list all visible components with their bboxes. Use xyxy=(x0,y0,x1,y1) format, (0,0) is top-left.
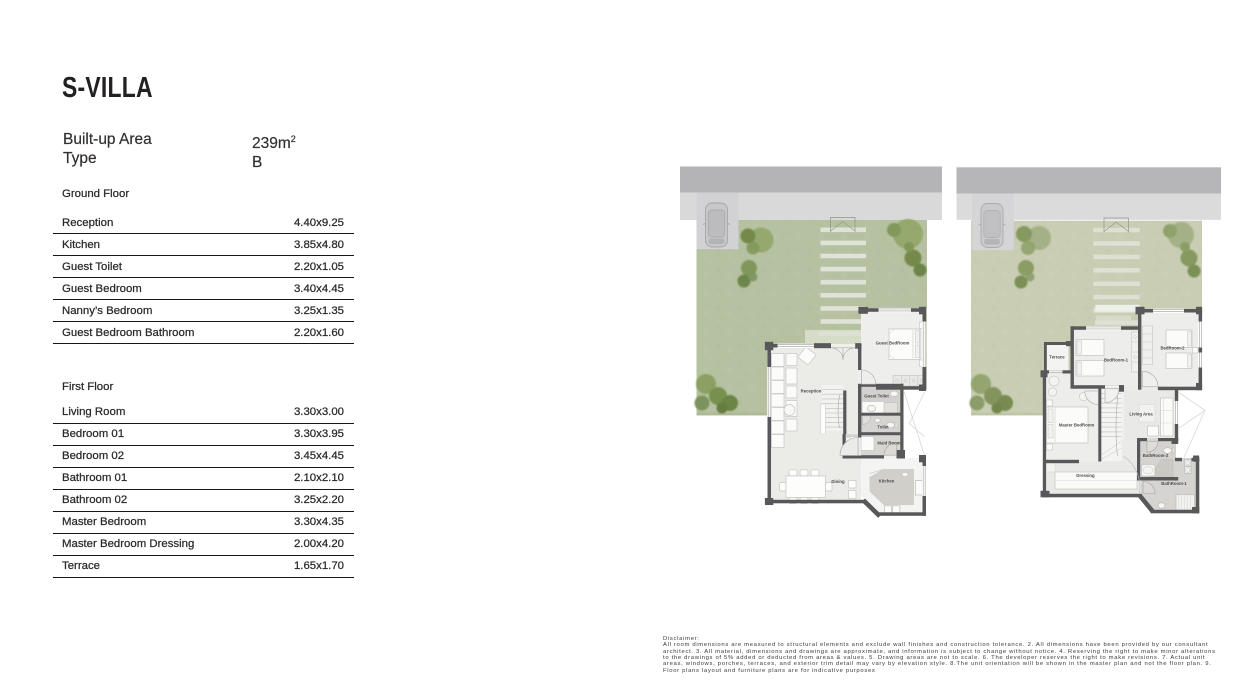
svg-text:BedRoom-1: BedRoom-1 xyxy=(1104,358,1129,363)
svg-text:BedRoom-2: BedRoom-2 xyxy=(1160,346,1185,351)
svg-text:Maid Room: Maid Room xyxy=(877,441,900,446)
svg-text:Guest BedRoom: Guest BedRoom xyxy=(876,341,910,346)
svg-text:Guest Toilet: Guest Toilet xyxy=(864,394,889,399)
svg-text:Dining: Dining xyxy=(831,479,845,484)
svg-text:Toilet: Toilet xyxy=(877,425,889,430)
svg-text:BathRoom-2: BathRoom-2 xyxy=(1143,453,1169,458)
svg-text:Terrace: Terrace xyxy=(1049,355,1065,360)
svg-text:Kitchen: Kitchen xyxy=(879,479,895,484)
svg-text:Reception: Reception xyxy=(801,389,822,394)
svg-text:Master BedRoom: Master BedRoom xyxy=(1059,423,1095,428)
svg-text:Living Area: Living Area xyxy=(1129,412,1153,417)
svg-text:BathRoom-1: BathRoom-1 xyxy=(1161,481,1187,486)
svg-text:Dressing: Dressing xyxy=(1076,473,1095,478)
